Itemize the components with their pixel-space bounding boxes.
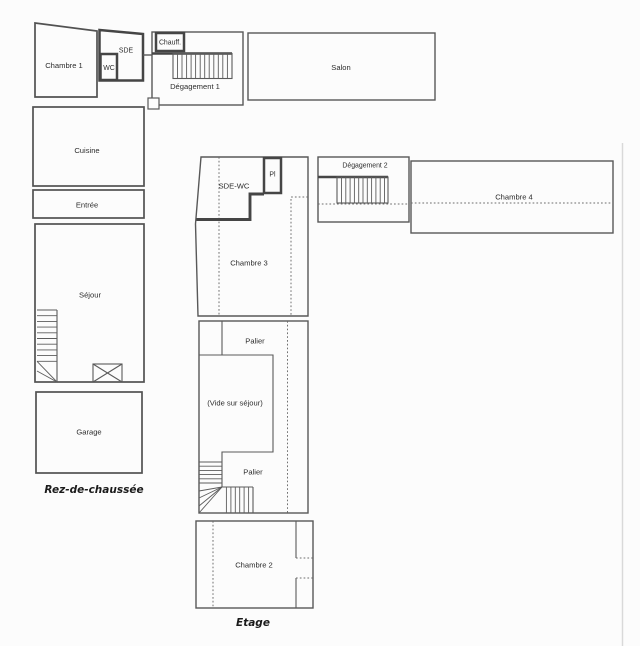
room-pl: Pl xyxy=(264,158,281,193)
wall-thick xyxy=(197,194,265,220)
room-chambre-2: Chambre 2 xyxy=(196,521,313,608)
room-label: Chambre 4 xyxy=(495,193,533,202)
room-sejour: Séjour xyxy=(35,224,144,382)
floor-plan-drawing: Chambre 1 SDE WC xyxy=(0,0,640,646)
room-chambre-1: Chambre 1 xyxy=(35,23,97,97)
room-label: Entrée xyxy=(76,201,98,210)
room-label: SDE-WC xyxy=(219,182,250,191)
crossed-box-symbol xyxy=(93,364,122,382)
room-outline xyxy=(196,157,309,316)
room-chauff: Chauff. xyxy=(156,33,184,51)
room-garage: Garage xyxy=(36,392,142,473)
room-chambre-3-block: SDE-WC Pl Chambre 3 xyxy=(196,157,309,316)
room-palier-block: Palier (Vide sur séjour) Palier xyxy=(199,321,308,513)
room-label: Garage xyxy=(76,428,101,437)
floor-plan-page: Chambre 1 SDE WC xyxy=(0,0,640,646)
room-outline xyxy=(35,23,97,97)
room-outline xyxy=(199,321,308,513)
room-label: Pl xyxy=(269,172,276,179)
room-label: WC xyxy=(103,65,115,72)
room-label: Chauff. xyxy=(159,40,181,47)
room-label: Dégagement 2 xyxy=(342,163,387,170)
room-degagement-2: Dégagement 2 xyxy=(318,157,409,222)
room-chambre-4: Chambre 4 xyxy=(411,161,613,233)
closet-top-right xyxy=(296,521,313,558)
staircase-symbol xyxy=(173,54,232,79)
room-label: Dégagement 1 xyxy=(170,82,220,91)
room-wc: WC xyxy=(101,54,118,80)
room-label: Chambre 3 xyxy=(230,259,268,268)
room-label: Chambre 2 xyxy=(235,561,273,570)
closet-bottom-right xyxy=(296,578,313,608)
room-label: Séjour xyxy=(79,291,101,300)
upper-floor: SDE-WC Pl Chambre 3 Palier (Vide sur séj… xyxy=(196,157,614,629)
duct-box-symbol xyxy=(148,98,159,109)
room-label: SDE xyxy=(119,48,134,55)
staircase-symbol xyxy=(37,310,57,382)
staircase-symbol xyxy=(337,177,388,203)
ground-floor-title: Rez-de-chaussée xyxy=(44,484,143,496)
room-outline xyxy=(35,224,144,382)
room-label: (Vide sur séjour) xyxy=(207,399,263,408)
room-label: Cuisine xyxy=(74,146,99,155)
room-entree: Entrée xyxy=(33,190,144,218)
room-label: Palier xyxy=(243,468,263,477)
room-salon: Salon xyxy=(248,33,435,100)
dashed-partition xyxy=(291,197,308,315)
room-cuisine: Cuisine xyxy=(33,107,144,186)
room-label: Palier xyxy=(245,337,265,346)
upper-floor-title: Etage xyxy=(236,617,270,629)
room-label: Salon xyxy=(331,63,350,72)
room-label: Chambre 1 xyxy=(45,61,83,70)
